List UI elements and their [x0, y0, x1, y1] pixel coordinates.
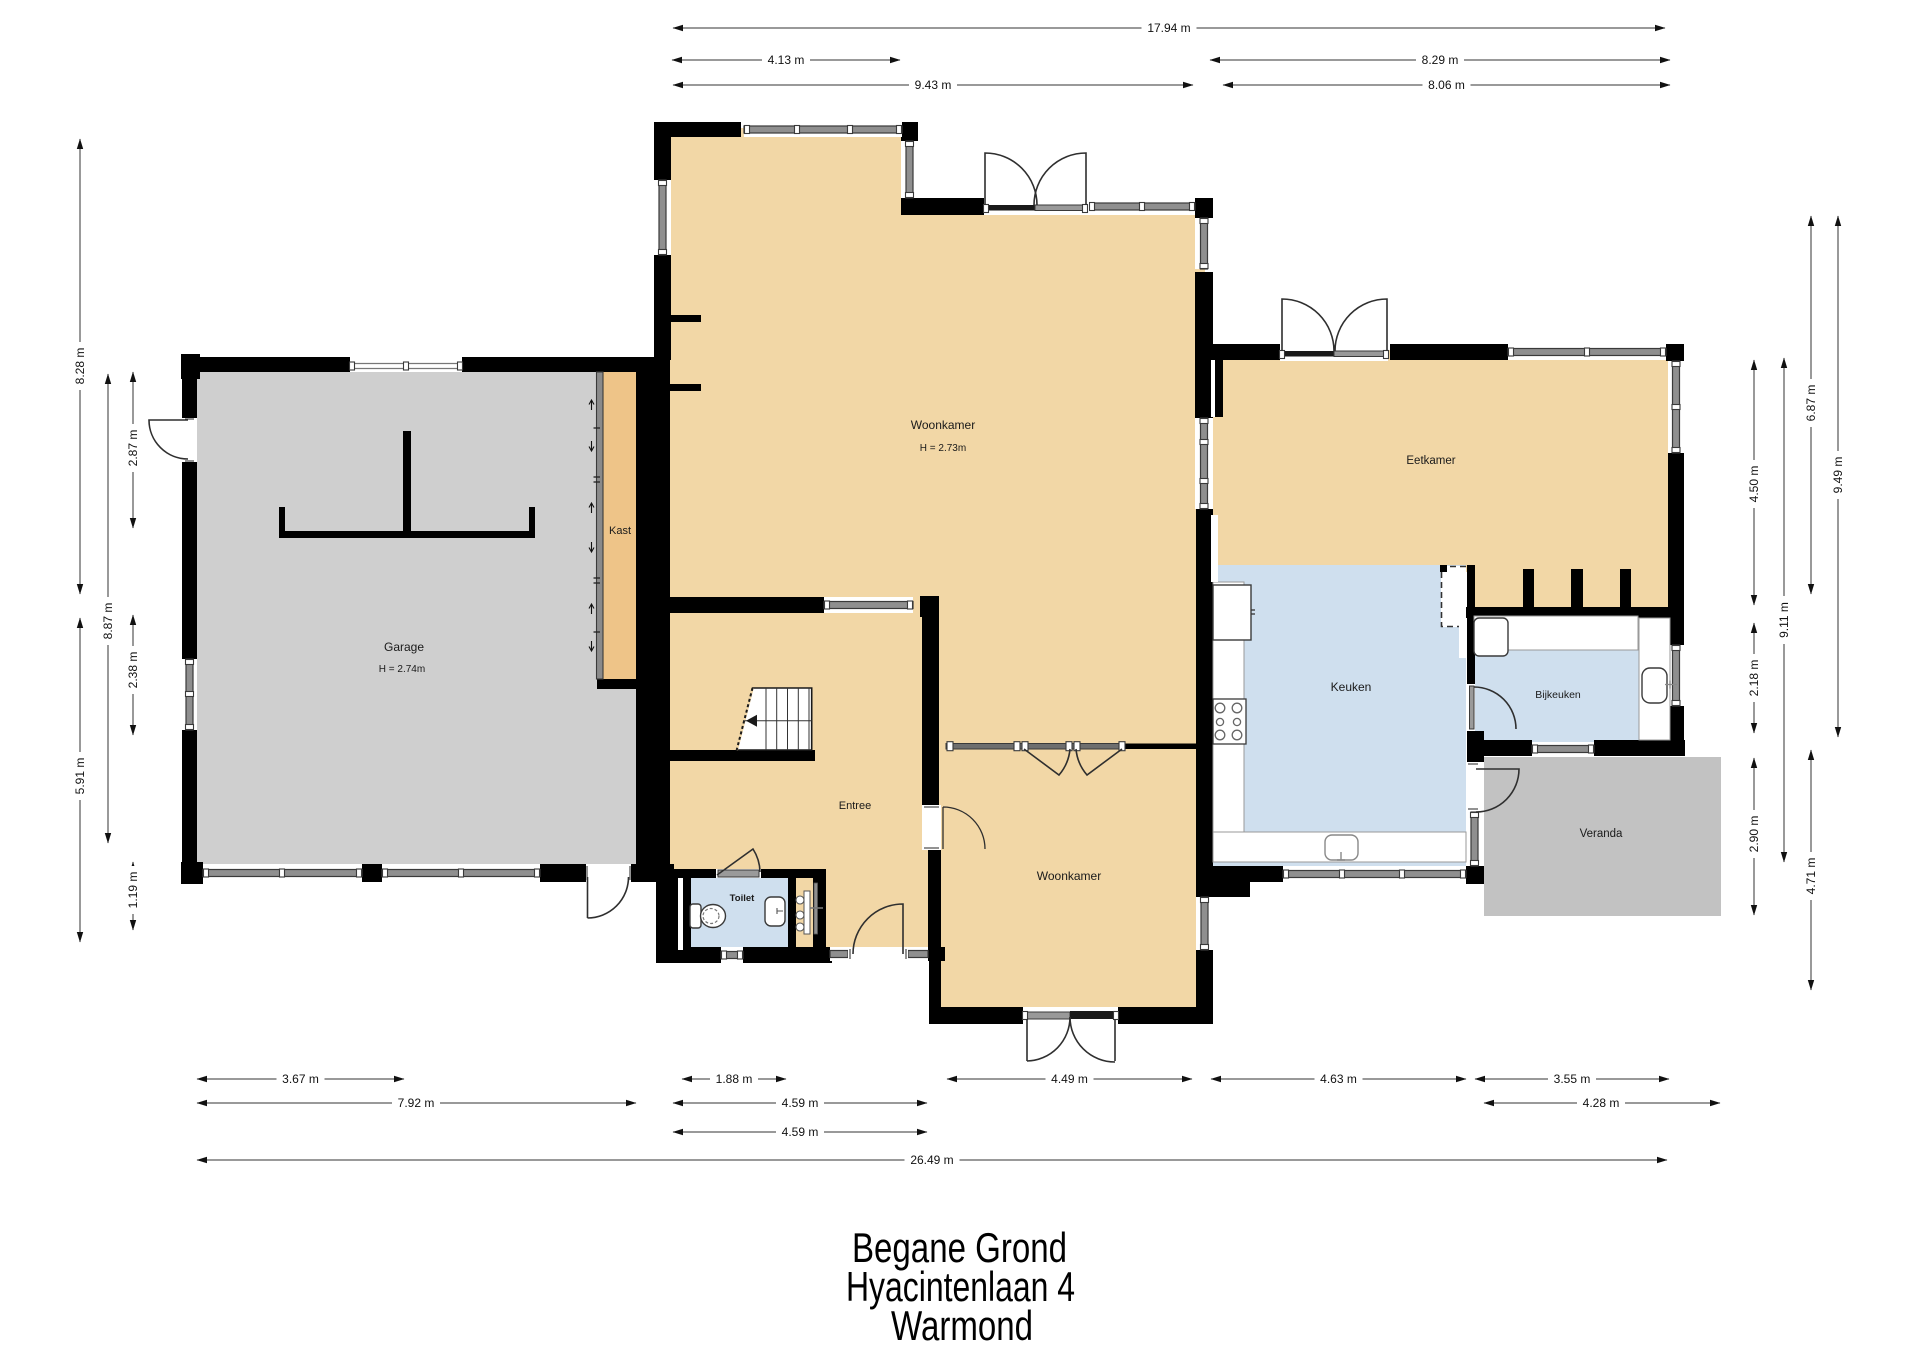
svg-text:8.28 m: 8.28 m — [73, 348, 87, 385]
svg-text:4.63 m: 4.63 m — [1320, 1072, 1357, 1086]
svg-text:8.87 m: 8.87 m — [101, 603, 115, 640]
svg-text:3.67 m: 3.67 m — [282, 1072, 319, 1086]
svg-text:Entree: Entree — [839, 800, 871, 812]
svg-text:26.49 m: 26.49 m — [910, 1153, 953, 1167]
svg-text:8.06 m: 8.06 m — [1428, 78, 1465, 92]
svg-text:H = 2.74m: H = 2.74m — [379, 664, 425, 675]
svg-text:3.55 m: 3.55 m — [1554, 1072, 1591, 1086]
svg-text:H = 2.73m: H = 2.73m — [920, 443, 966, 454]
svg-text:4.49 m: 4.49 m — [1051, 1072, 1088, 1086]
svg-text:2.87 m: 2.87 m — [126, 430, 140, 467]
svg-text:Eetkamer: Eetkamer — [1406, 455, 1455, 467]
svg-text:1.88 m: 1.88 m — [716, 1072, 753, 1086]
svg-text:Veranda: Veranda — [1580, 828, 1623, 840]
svg-text:5.91 m: 5.91 m — [73, 758, 87, 795]
svg-text:4.28 m: 4.28 m — [1583, 1096, 1620, 1110]
svg-text:Woonkamer: Woonkamer — [911, 418, 975, 432]
svg-text:2.90 m: 2.90 m — [1747, 816, 1761, 853]
svg-text:4.50 m: 4.50 m — [1747, 466, 1761, 503]
svg-text:Kast: Kast — [609, 525, 631, 537]
svg-text:4.71 m: 4.71 m — [1804, 858, 1818, 895]
svg-text:6.87 m: 6.87 m — [1804, 385, 1818, 422]
svg-text:9.11 m: 9.11 m — [1777, 602, 1791, 638]
svg-text:9.43 m: 9.43 m — [915, 78, 952, 92]
svg-text:Warmond: Warmond — [891, 1302, 1033, 1349]
svg-text:Garage: Garage — [384, 640, 424, 654]
svg-text:7.92 m: 7.92 m — [398, 1096, 435, 1110]
svg-text:17.94 m: 17.94 m — [1147, 21, 1190, 35]
svg-text:1.19 m: 1.19 m — [126, 872, 140, 909]
svg-text:8.29 m: 8.29 m — [1422, 53, 1459, 67]
svg-text:Toilet: Toilet — [730, 893, 755, 904]
svg-text:Keuken: Keuken — [1331, 680, 1372, 694]
svg-text:9.49 m: 9.49 m — [1831, 457, 1845, 494]
svg-text:Woonkamer: Woonkamer — [1037, 869, 1101, 883]
svg-text:Bijkeuken: Bijkeuken — [1535, 689, 1581, 701]
svg-text:2.38 m: 2.38 m — [126, 652, 140, 689]
svg-text:2.18 m: 2.18 m — [1747, 660, 1761, 697]
svg-text:4.13 m: 4.13 m — [768, 53, 805, 67]
svg-text:4.59 m: 4.59 m — [782, 1125, 819, 1139]
svg-text:4.59 m: 4.59 m — [782, 1096, 819, 1110]
